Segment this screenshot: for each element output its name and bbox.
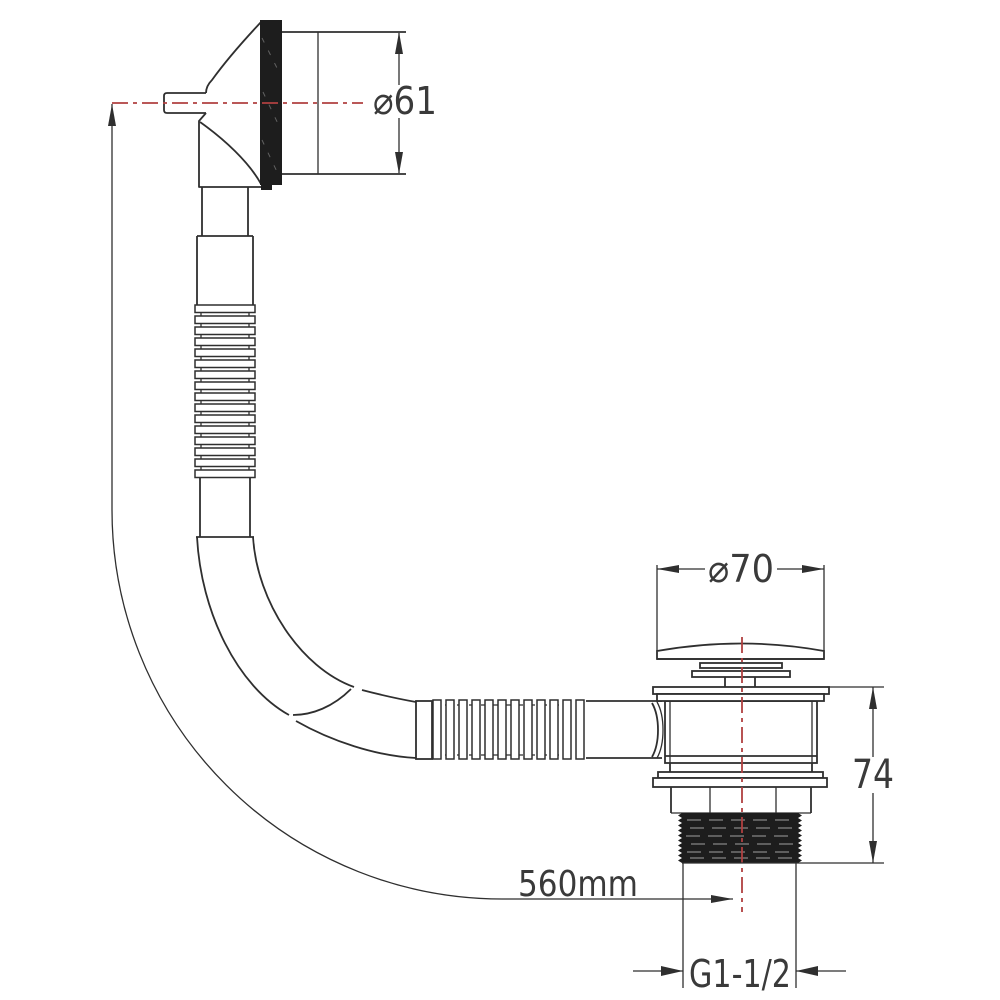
plug-plate-lower [692, 671, 790, 677]
arrowhead-down-icon [395, 152, 403, 174]
label-hose-length: 560mm [518, 864, 638, 905]
label-overflow-diameter: ⌀61 [373, 79, 437, 123]
drawing-canvas: ⌀61 ⌀70 74 560mm G1-1/2 [0, 0, 1000, 1000]
arrowhead-up-icon [869, 687, 877, 709]
waste-hex-section [671, 787, 811, 813]
overflow-cone-bottom-edge [200, 122, 261, 184]
bend-inner-edge [253, 537, 354, 687]
hose-connector-cap [652, 703, 658, 757]
horizontal-hose [416, 700, 662, 759]
waste-top-flange [653, 687, 829, 694]
dimension-plug-diameter: ⌀70 [657, 547, 824, 651]
arrowhead-right-icon [661, 966, 683, 976]
waste-bottom-flange [658, 772, 823, 778]
popup-waste [652, 644, 829, 864]
bend-fold-edge [293, 689, 351, 715]
arrowhead-right-icon [802, 565, 824, 573]
label-body-height: 74 [852, 752, 894, 798]
arrowhead-up-icon [108, 104, 116, 126]
technical-drawing: ⌀61 ⌀70 74 560mm G1-1/2 [0, 0, 1000, 1000]
overflow-gasket-step [261, 185, 272, 190]
vertical-hose [195, 187, 255, 537]
dimension-overflow-diameter: ⌀61 [371, 32, 439, 174]
label-plug-diameter: ⌀70 [708, 547, 774, 591]
bend-outer-edge [197, 537, 289, 715]
waste-thread-section [678, 813, 802, 863]
arrowhead-left-icon [657, 565, 679, 573]
label-thread-size: G1-1/2 [689, 952, 791, 996]
waste-plug-cap [657, 644, 824, 660]
bend-bottom-edge [296, 721, 416, 758]
vertical-corrugated-section [195, 305, 255, 478]
horizontal-corrugated-section [433, 700, 584, 759]
overflow-head [164, 20, 406, 190]
dimension-thread-size: G1-1/2 [633, 863, 846, 996]
plug-plate-upper [700, 663, 782, 668]
arrowhead-right-icon [711, 895, 733, 903]
hose-bend [197, 537, 416, 758]
overflow-cone-top-edge [206, 21, 262, 93]
hose-collar [416, 701, 432, 759]
arrowhead-left-icon [796, 966, 818, 976]
arrowhead-down-icon [869, 841, 877, 863]
waste-body [665, 701, 817, 763]
bend-top-edge [362, 690, 416, 702]
arrowhead-up-icon [395, 32, 403, 54]
